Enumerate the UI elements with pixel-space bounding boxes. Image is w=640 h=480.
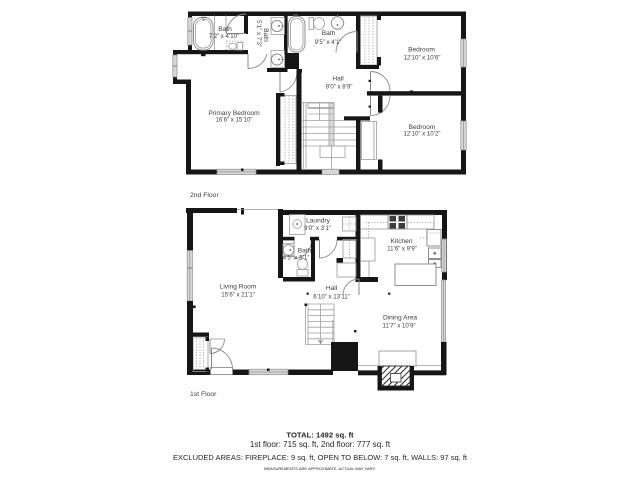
svg-text:Bedroom: Bedroom (408, 47, 435, 54)
svg-text:Hall: Hall (326, 285, 338, 292)
svg-text:12’10” x 10’6”: 12’10” x 10’6” (404, 55, 441, 62)
svg-text:15’6” x 21’1”: 15’6” x 21’1” (221, 292, 255, 299)
svg-text:1st Floor: 1st Floor (190, 391, 217, 398)
svg-text:9’0” x 8’9”: 9’0” x 8’9” (326, 84, 353, 91)
svg-text:Laundry: Laundry (306, 218, 331, 225)
svg-text:5’1” x 7’3”: 5’1” x 7’3” (255, 20, 262, 47)
svg-text:Bath: Bath (298, 248, 312, 255)
svg-text:Bath: Bath (218, 26, 232, 33)
svg-text:4’5” x 5’1”: 4’5” x 5’1” (283, 255, 310, 262)
svg-text:MEASUREMENTS ARE APPROXIMATE.: MEASUREMENTS ARE APPROXIMATE. ACTUAL MAY… (264, 466, 376, 471)
svg-text:11’7” x 10’9”: 11’7” x 10’9” (382, 323, 415, 330)
svg-text:2nd Floor: 2nd Floor (190, 192, 219, 199)
svg-text:12’10” x 10’2”: 12’10” x 10’2” (404, 130, 441, 137)
svg-text:6’10” x 13’11”: 6’10” x 13’11” (313, 294, 349, 301)
svg-text:Hall: Hall (332, 76, 344, 83)
svg-text:16’6” x 15’10”: 16’6” x 15’10” (216, 117, 253, 124)
svg-text:TOTAL: 1492 sq. ft: TOTAL: 1492 sq. ft (286, 431, 354, 440)
svg-text:Living Room: Living Room (220, 284, 257, 291)
svg-text:Dining Area: Dining Area (383, 315, 417, 322)
svg-text:Bath: Bath (322, 30, 336, 37)
svg-text:9’5” x 4’1”: 9’5” x 4’1” (315, 39, 342, 46)
svg-text:1st floor: 715 sq. ft, 2nd flo: 1st floor: 715 sq. ft, 2nd floor: 777 sq… (250, 440, 391, 449)
svg-text:Kitchen: Kitchen (391, 238, 413, 245)
svg-text:9’0” x 3’1”: 9’0” x 3’1” (304, 225, 331, 232)
svg-text:Bath: Bath (262, 28, 269, 42)
svg-text:7’2” x 4’10”: 7’2” x 4’10” (209, 33, 239, 40)
svg-text:EXCLUDED AREAS: FIREPLACE: 9 s: EXCLUDED AREAS: FIREPLACE: 9 sq. ft, OPE… (173, 453, 468, 462)
svg-text:11’6” x 9’9”: 11’6” x 9’9” (387, 245, 417, 252)
